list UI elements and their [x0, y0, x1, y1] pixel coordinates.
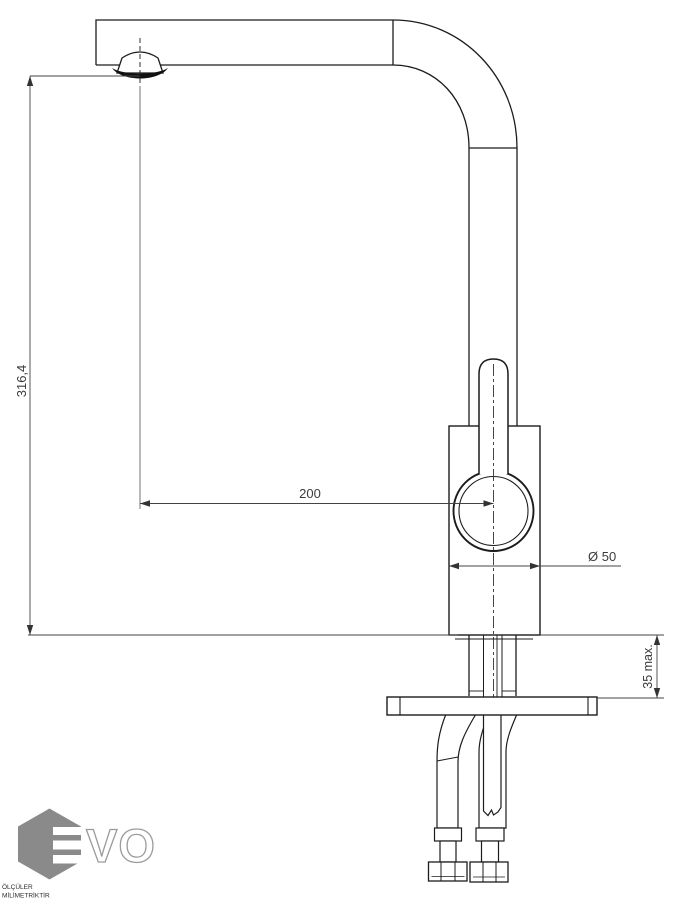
reach-value: 200	[299, 486, 321, 501]
logo-e-bars	[53, 827, 86, 864]
dimension-reach: 200	[140, 86, 494, 509]
pullout-hose	[484, 714, 502, 816]
diameter-value: Ø 50	[588, 549, 616, 564]
supply-hose-left	[429, 714, 477, 881]
spout-outer-edge	[96, 20, 517, 426]
faucet-dimension-drawing: 316,4 200 Ø 50 35 max.	[0, 0, 690, 900]
spout-inner-edge	[96, 65, 469, 426]
arrow-up	[654, 635, 660, 645]
mounting-shank	[469, 635, 516, 697]
arrow-down	[27, 625, 33, 635]
dimension-mount-thickness: 35 max.	[540, 635, 664, 698]
drawing-notes: ÖLÇÜLER MİLİMETRİKTİR	[2, 883, 50, 900]
note-line-1: ÖLÇÜLER	[2, 883, 33, 891]
faucet-outline	[96, 20, 597, 882]
arrow-up	[27, 76, 33, 86]
mount-value: 35 max.	[641, 644, 655, 688]
mounting-plate	[387, 697, 597, 715]
dimension-annotations: 316,4 200 Ø 50 35 max.	[14, 76, 664, 698]
note-line-2: MİLİMETRİKTİR	[2, 891, 50, 900]
technical-drawing-page: 316,4 200 Ø 50 35 max.	[0, 0, 690, 900]
dimension-height: 316,4	[14, 76, 458, 635]
arrow-left	[140, 500, 150, 506]
evo-logo: VO	[18, 809, 156, 880]
height-value: 316,4	[14, 365, 29, 398]
logo-text: VO	[86, 819, 156, 872]
